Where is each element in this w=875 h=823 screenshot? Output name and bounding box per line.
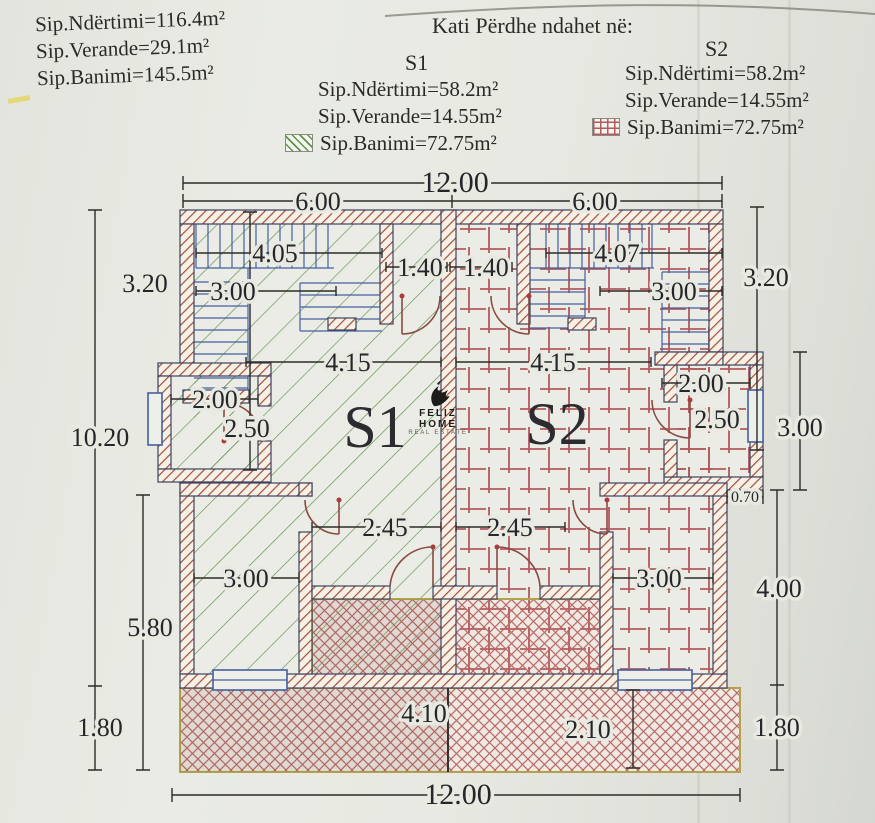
dim-veranda-s2: 2.10 [565,715,611,744]
dim-left-upper: 3.20 [122,269,168,298]
dim-living-left: 4.15 [325,348,371,377]
dim-hall-right: 2.45 [487,513,533,542]
feliz-home-flame-icon [425,380,451,407]
dim-top-left: 6.00 [295,187,341,216]
dim-top-total: 12.00 [421,166,489,199]
window-wc-left [148,393,162,445]
dim-room-right: 3.00 [636,564,682,593]
dim-stair-left-w: 4.05 [252,239,298,268]
scanned-floor-plan-page: Sip.Ndërtimi=116.4m² Sip.Verande=29.1m² … [0,0,875,823]
unit-label-s2: S2 [525,391,588,457]
dim-wc-right-d: 2.50 [694,405,740,434]
dim-bottom-total: 12.00 [424,778,492,811]
dim-entry-right: 1.40 [463,253,509,282]
dim-stair-left-d: 3.00 [210,277,256,306]
dim-veranda-s1: 4.10 [401,699,447,728]
dim-left-veranda: 1.80 [77,713,123,742]
dim-right-step: 0.70 [731,489,759,506]
logo-tagline: REAL ESTATE [398,430,478,436]
dim-wc-left-w: 2.00 [192,385,238,414]
dim-right-upper: 3.20 [743,263,789,292]
dim-right-lower: 4.00 [756,574,802,603]
dim-wc-left-d: 2.50 [224,414,270,443]
dim-living-right: 4.15 [530,348,576,377]
dim-right-wc: 3.00 [777,413,823,442]
feliz-home-logo: FELIZ HOME REAL ESTATE [398,380,478,436]
dim-room-left: 3.00 [223,564,269,593]
dim-wc-right-w: 2.00 [678,369,724,398]
dim-hall-left: 2.45 [362,513,408,542]
dim-left-total: 10.20 [71,423,130,452]
page-edge-curve [385,5,875,16]
dim-left-lower: 5.80 [127,613,173,642]
dim-stair-right-w: 4.07 [594,239,640,268]
logo-name: FELIZ HOME [398,408,478,430]
dim-entry-left: 1.40 [397,253,443,282]
dim-stair-right-d: 3.00 [651,277,697,306]
dim-right-veranda: 1.80 [754,713,800,742]
dim-top-right: 6.00 [572,187,618,216]
window-wc-right [748,390,763,442]
